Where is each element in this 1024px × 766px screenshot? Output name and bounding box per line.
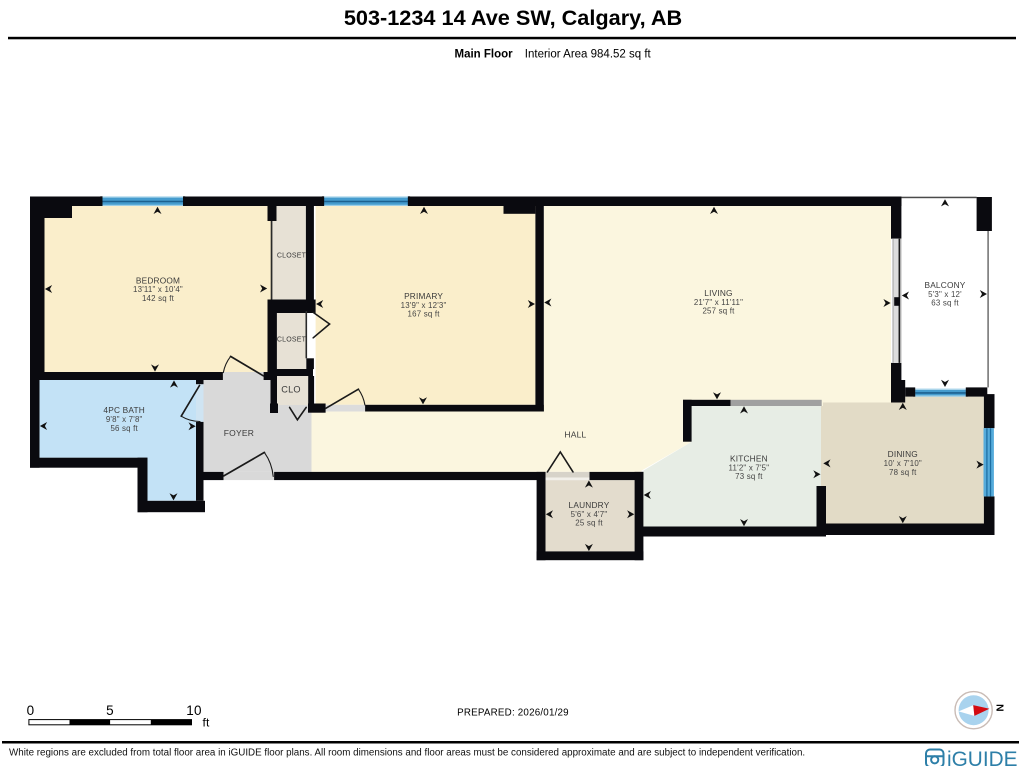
svg-text:0: 0 [27,703,35,718]
svg-text:5'3" x 12': 5'3" x 12' [928,290,962,299]
svg-text:11'2" x 7'5": 11'2" x 7'5" [729,463,770,472]
svg-text:PRIMARY: PRIMARY [404,291,443,301]
svg-text:10: 10 [186,703,201,718]
svg-text:13'9" x 12'3": 13'9" x 12'3" [401,301,447,310]
svg-text:CLOSET: CLOSET [277,252,307,259]
svg-text:FOYER: FOYER [224,428,254,438]
svg-text:Main Floor: Main Floor [455,49,514,61]
svg-text:56 sq ft: 56 sq ft [110,424,138,433]
svg-text:White regions are excluded fro: White regions are excluded from total fl… [9,748,805,759]
svg-text:PREPARED: 2026/01/29: PREPARED: 2026/01/29 [457,708,569,719]
svg-text:5'6" x 4'7": 5'6" x 4'7" [571,510,608,519]
svg-text:LIVING: LIVING [704,288,732,298]
svg-text:CLO: CLO [281,384,301,394]
svg-text:78 sq ft: 78 sq ft [889,468,917,477]
svg-text:CLOSET: CLOSET [277,336,307,343]
svg-text:LAUNDRY: LAUNDRY [569,500,610,510]
svg-text:BALCONY: BALCONY [924,280,965,290]
svg-text:10' x 7'10": 10' x 7'10" [884,459,922,468]
svg-text:N: N [994,704,1006,712]
svg-text:DINING: DINING [888,449,918,459]
svg-text:21'7" x 11'11": 21'7" x 11'11" [694,298,743,307]
svg-text:4PC BATH: 4PC BATH [103,405,145,415]
svg-text:9'8" x 7'8": 9'8" x 7'8" [106,415,143,424]
svg-text:25 sq ft: 25 sq ft [575,519,603,528]
svg-text:5: 5 [106,703,114,718]
svg-text:73 sq ft: 73 sq ft [735,472,763,481]
svg-text:167 sq ft: 167 sq ft [408,310,441,319]
svg-text:BEDROOM: BEDROOM [136,275,180,285]
svg-text:503-1234 14 Ave SW, Calgary, A: 503-1234 14 Ave SW, Calgary, AB [344,5,682,30]
svg-text:257 sq ft: 257 sq ft [702,307,735,316]
svg-text:iGUIDE: iGUIDE [947,748,1017,766]
svg-text:142 sq ft: 142 sq ft [142,294,175,303]
svg-text:HALL: HALL [564,430,586,440]
svg-text:ft: ft [203,716,211,730]
svg-text:63 sq ft: 63 sq ft [931,299,959,308]
svg-text:KITCHEN: KITCHEN [730,454,768,464]
svg-text:13'11" x 10'4": 13'11" x 10'4" [133,285,183,294]
svg-text:Interior Area 984.52 sq ft: Interior Area 984.52 sq ft [525,49,652,61]
